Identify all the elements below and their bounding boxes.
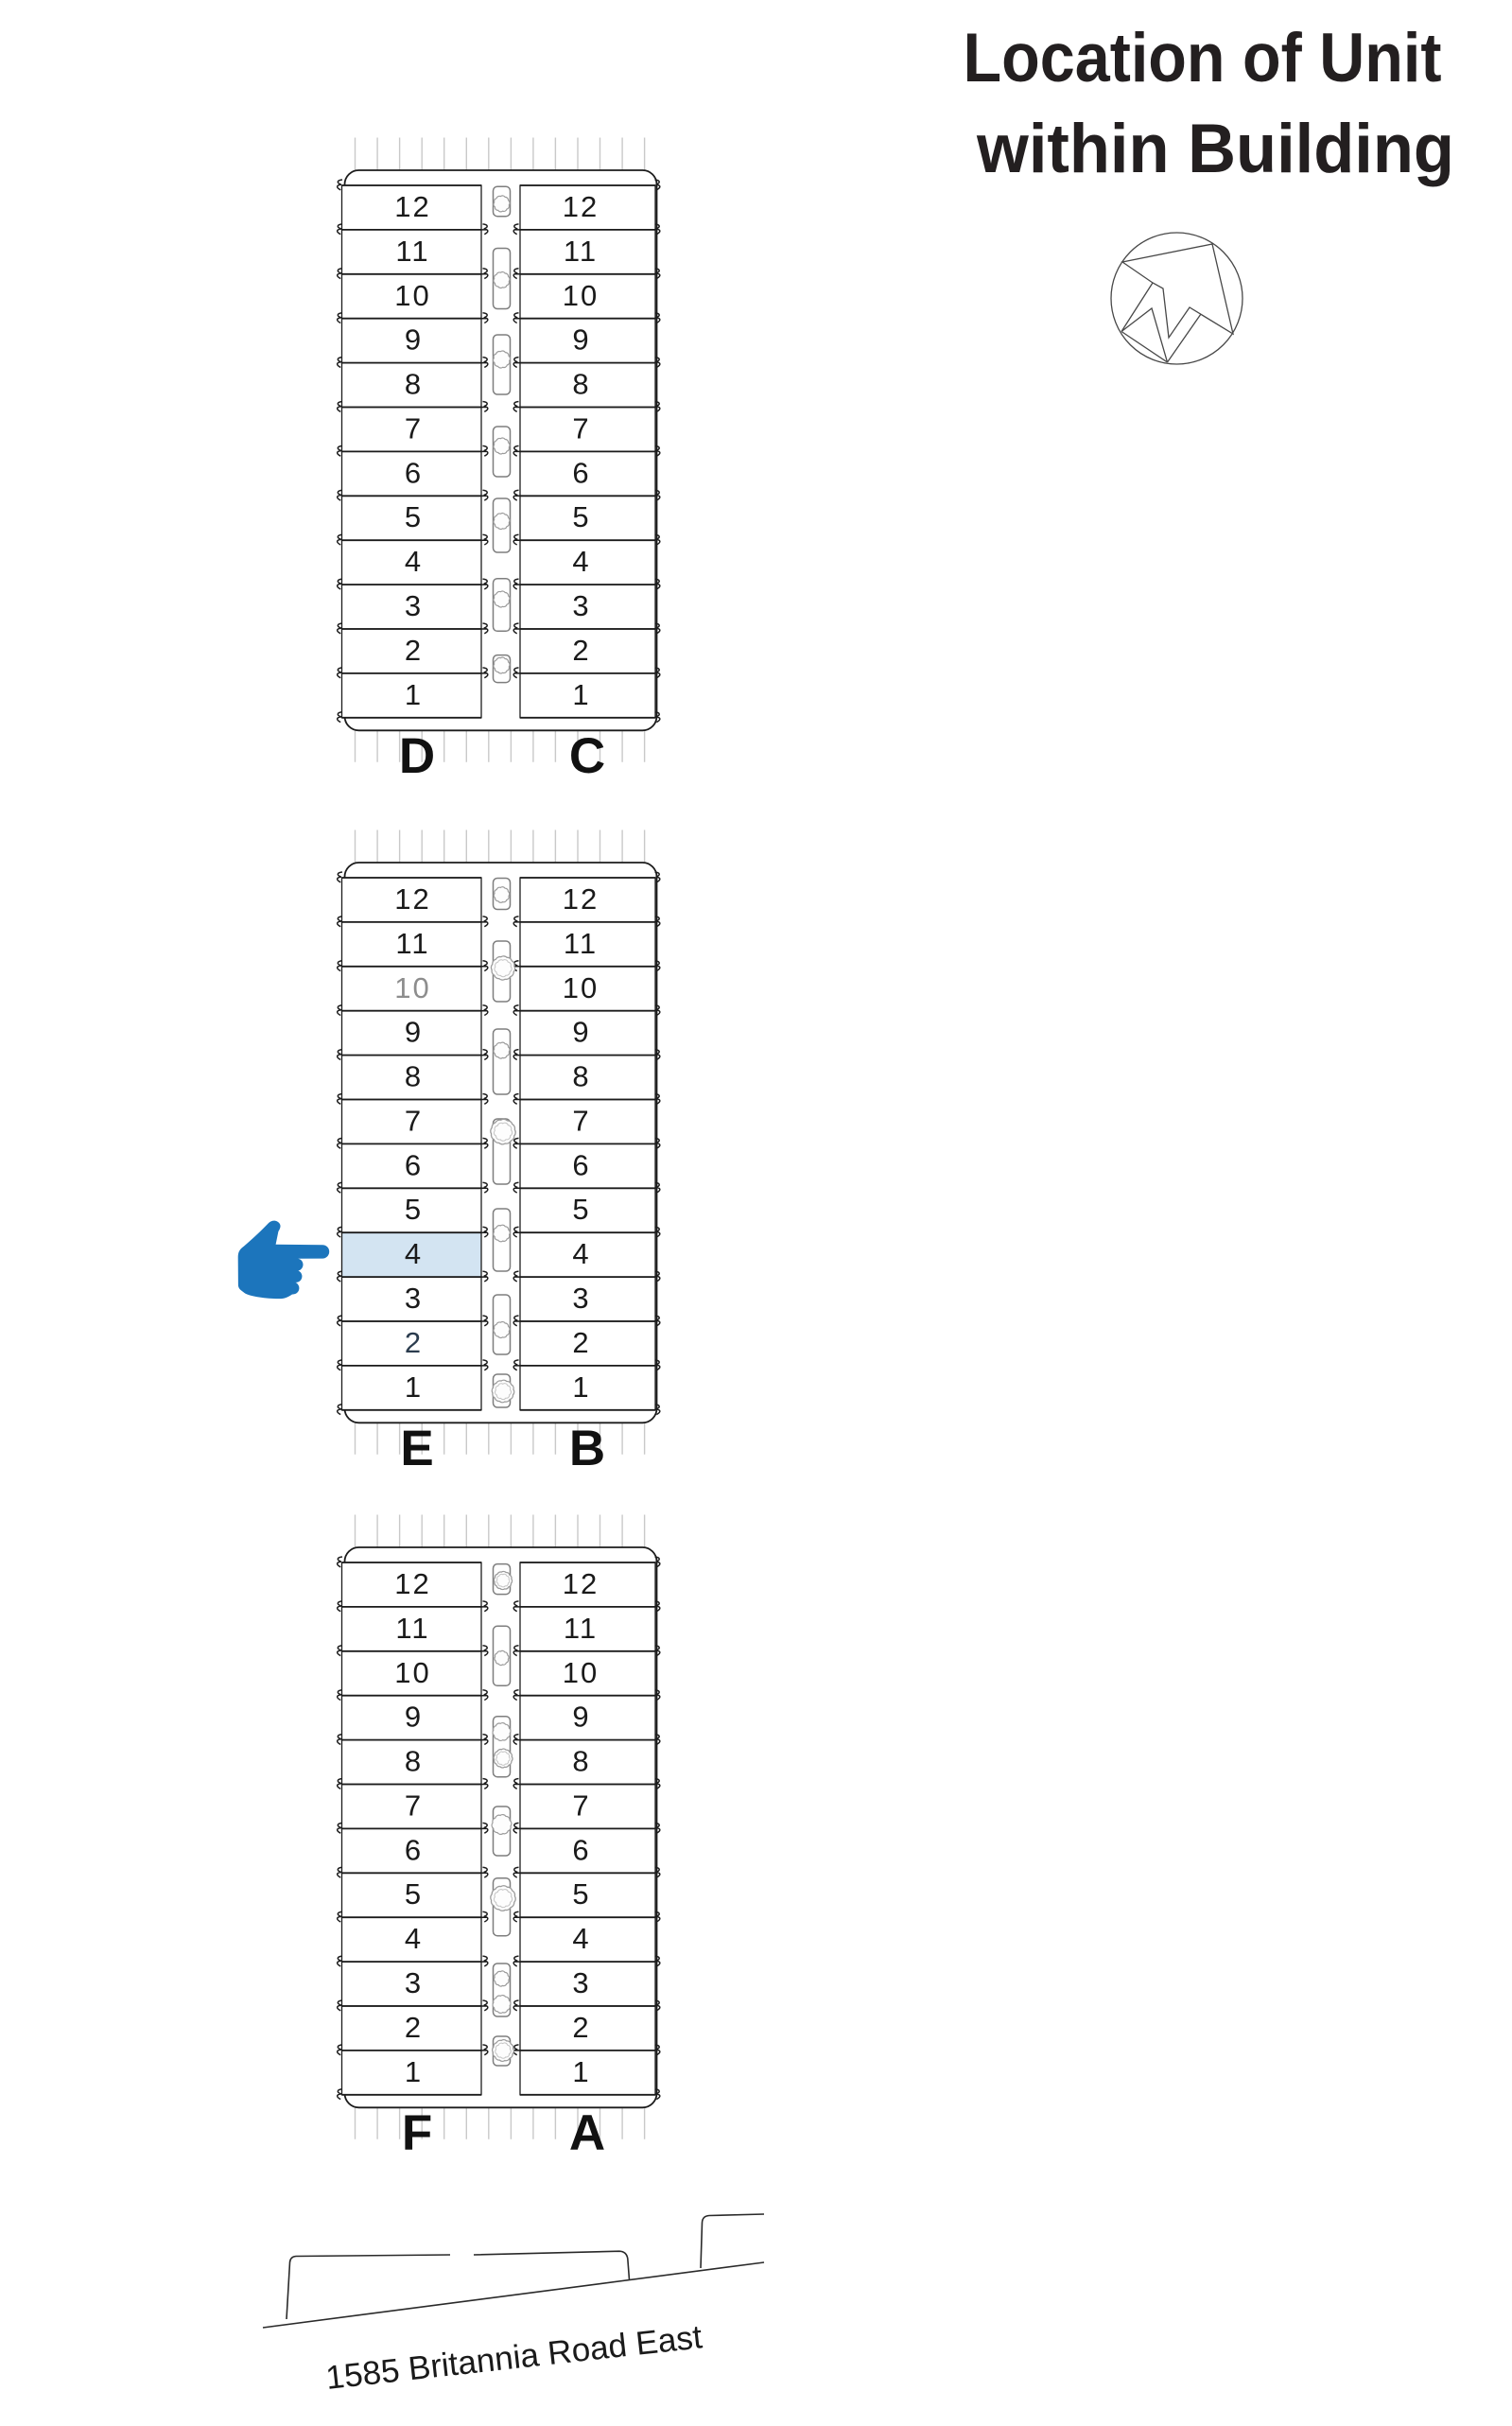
svg-text:10: 10 [563,279,599,312]
svg-text:Location of Unit: Location of Unit [964,20,1442,96]
svg-text:5: 5 [405,1877,421,1911]
svg-text:9: 9 [572,1701,588,1734]
svg-text:1: 1 [572,2055,588,2088]
svg-text:12: 12 [563,1567,599,1600]
svg-text:9: 9 [572,323,588,357]
svg-text:1: 1 [572,1370,588,1404]
svg-text:9: 9 [405,1701,421,1734]
svg-text:3: 3 [405,589,421,622]
svg-text:10: 10 [563,971,599,1004]
svg-text:4: 4 [572,1922,588,1955]
svg-text:6: 6 [405,456,421,489]
svg-text:2: 2 [572,634,588,667]
svg-text:8: 8 [405,1745,421,1778]
svg-text:12: 12 [394,1567,430,1600]
svg-text:1: 1 [572,678,588,711]
svg-text:11: 11 [564,235,598,268]
svg-text:4: 4 [405,1922,421,1955]
svg-text:8: 8 [405,1060,421,1093]
svg-text:10: 10 [563,1656,599,1689]
svg-text:7: 7 [405,1789,421,1823]
svg-text:7: 7 [572,411,588,445]
svg-text:11: 11 [564,1612,598,1645]
svg-text:7: 7 [572,1105,588,1138]
svg-text:9: 9 [405,1016,421,1049]
svg-text:E: E [400,1421,433,1476]
svg-text:7: 7 [405,1105,421,1138]
svg-text:2: 2 [405,2011,421,2044]
svg-text:5: 5 [572,1193,588,1226]
svg-text:within Building: within Building [976,111,1454,187]
svg-text:10: 10 [394,971,430,1004]
svg-text:C: C [569,728,605,784]
svg-text:5: 5 [572,500,588,533]
svg-text:11: 11 [395,1612,429,1645]
svg-text:4: 4 [405,1237,421,1270]
svg-text:4: 4 [572,545,588,578]
svg-text:7: 7 [572,1789,588,1823]
svg-text:6: 6 [572,456,588,489]
svg-text:3: 3 [572,589,588,622]
svg-text:10: 10 [394,279,430,312]
svg-text:12: 12 [563,190,599,223]
svg-text:6: 6 [572,1833,588,1866]
svg-text:3: 3 [405,1966,421,1999]
svg-text:11: 11 [564,927,598,960]
svg-text:8: 8 [572,1060,588,1093]
svg-text:2: 2 [572,1326,588,1359]
svg-text:7: 7 [405,411,421,445]
svg-text:A: A [569,2105,605,2161]
svg-text:11: 11 [395,927,429,960]
svg-text:F: F [402,2105,432,2161]
svg-text:9: 9 [572,1016,588,1049]
svg-text:8: 8 [405,368,421,401]
svg-text:1: 1 [405,2055,421,2088]
svg-text:1: 1 [405,678,421,711]
svg-text:1585 Britannia Road East: 1585 Britannia Road East [324,2318,704,2397]
svg-text:2: 2 [405,1326,421,1359]
svg-text:5: 5 [405,1193,421,1226]
svg-text:12: 12 [563,882,599,916]
svg-text:6: 6 [572,1148,588,1181]
svg-text:9: 9 [405,323,421,357]
svg-text:12: 12 [394,882,430,916]
svg-text:11: 11 [395,235,429,268]
svg-text:10: 10 [394,1656,430,1689]
svg-text:6: 6 [405,1833,421,1866]
svg-text:3: 3 [572,1282,588,1315]
svg-text:B: B [569,1421,605,1476]
svg-text:D: D [399,728,435,784]
svg-text:8: 8 [572,1745,588,1778]
svg-text:12: 12 [394,190,430,223]
svg-text:3: 3 [405,1282,421,1315]
svg-text:8: 8 [572,368,588,401]
svg-text:2: 2 [572,2011,588,2044]
svg-text:3: 3 [572,1966,588,1999]
svg-text:5: 5 [572,1877,588,1911]
svg-text:5: 5 [405,500,421,533]
svg-text:1: 1 [405,1370,421,1404]
svg-text:4: 4 [405,545,421,578]
svg-text:4: 4 [572,1237,588,1270]
svg-text:6: 6 [405,1148,421,1181]
svg-text:2: 2 [405,634,421,667]
